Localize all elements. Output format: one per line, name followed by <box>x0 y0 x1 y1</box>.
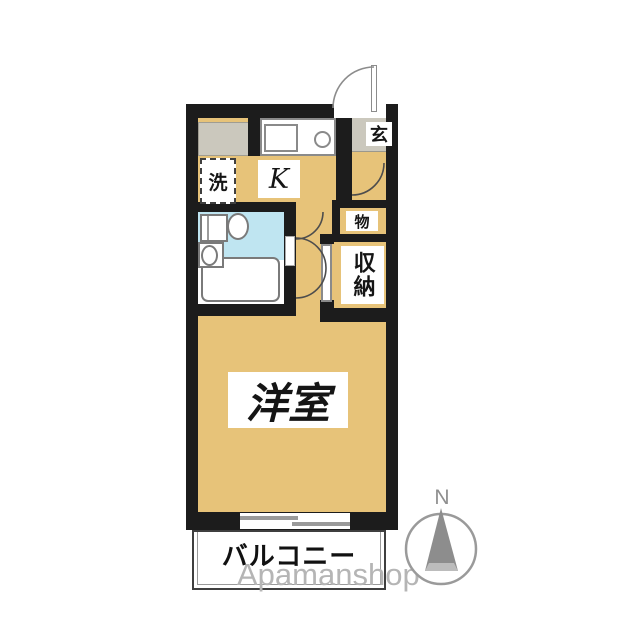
label-closet-text: 収納 <box>347 251 379 299</box>
label-closet: 収納 <box>341 246 384 304</box>
label-kitchen: K <box>258 160 300 198</box>
label-kitchen-text: K <box>269 164 289 195</box>
floorplan-canvas: 玄 洗 K 物 収納 洋室 バルコニー Apamanshop N <box>0 0 640 640</box>
label-room: 洋室 <box>228 372 348 428</box>
compass-north-label: N <box>430 486 454 510</box>
kitchen-hall-door-arc <box>296 212 323 239</box>
room-door-arc-upper <box>296 238 326 268</box>
label-laundry: 洗 <box>200 158 236 204</box>
watermark: Apamanshop <box>237 557 420 593</box>
hall-door-arc <box>352 163 384 195</box>
label-laundry-text: 洗 <box>208 168 227 195</box>
room-door-arc-lower <box>296 268 326 298</box>
label-cupboard-text: 物 <box>354 211 369 232</box>
label-entrance-text: 玄 <box>370 121 388 147</box>
label-room-text: 洋室 <box>246 370 330 431</box>
entrance-door-arc <box>333 67 374 108</box>
label-cupboard: 物 <box>346 211 378 231</box>
label-entrance: 玄 <box>366 122 392 146</box>
